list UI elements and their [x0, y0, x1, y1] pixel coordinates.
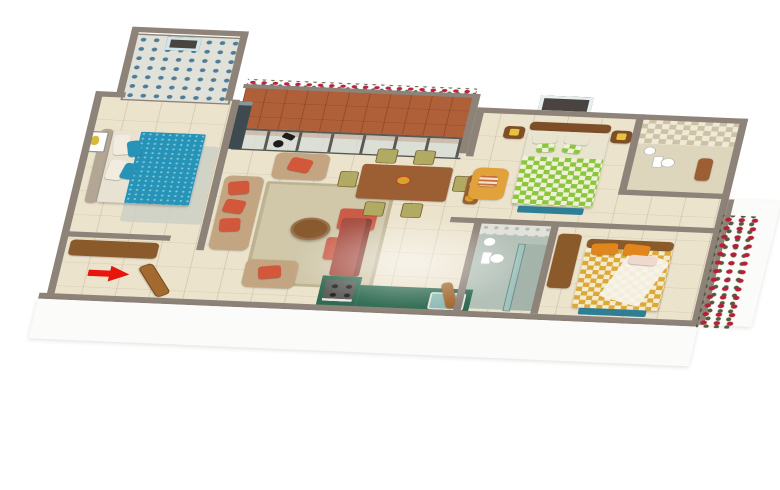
bathroom3-floor	[625, 143, 735, 196]
nightstand-right-lamp	[616, 133, 627, 140]
bed2-pillow-1	[532, 133, 558, 144]
bed1-pillow-blue-1	[127, 140, 142, 157]
bed3-pillow-1	[591, 243, 619, 255]
sofa-cushion-1	[228, 180, 249, 195]
watermark	[290, 215, 530, 310]
bedroom2-armchair-cushion	[478, 175, 499, 186]
floorplan-render	[0, 0, 780, 490]
bed2-pillow-green-1	[536, 143, 555, 153]
dining-chair-5	[337, 171, 360, 188]
dining-chair-2	[412, 150, 436, 165]
dining-chair-1	[375, 148, 399, 163]
sofa-cushion-3	[219, 218, 241, 232]
armchair-bottom-cushion	[258, 265, 281, 279]
bedroom2-duvet	[511, 156, 604, 208]
nightstand-left-lamp	[509, 129, 520, 136]
bathroom1-window	[165, 37, 202, 52]
